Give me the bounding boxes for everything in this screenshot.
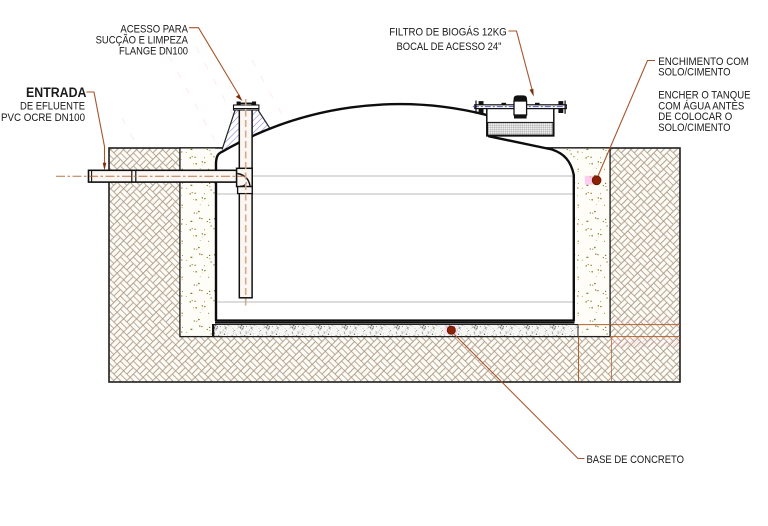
svg-text:SOLO/CIMENTO: SOLO/CIMENTO	[658, 67, 730, 79]
svg-text:BOCAL DE ACESSO 24": BOCAL DE ACESSO 24"	[397, 41, 502, 53]
svg-text:FLANGE DN100: FLANGE DN100	[119, 46, 188, 58]
svg-text:FILTRO DE BIOGÁS 12KG: FILTRO DE BIOGÁS 12KG	[389, 26, 507, 39]
svg-text:BASE DE CONCRETO: BASE DE CONCRETO	[587, 454, 685, 466]
svg-text:ENTRADA: ENTRADA	[26, 85, 87, 100]
svg-text:DE EFLUENTE: DE EFLUENTE	[20, 100, 85, 112]
svg-text:SOLO/CIMENTO: SOLO/CIMENTO	[658, 122, 730, 134]
svg-text:PVC OCRE DN100: PVC OCRE DN100	[1, 112, 85, 124]
svg-text:SUCÇÃO E LIMPEZA: SUCÇÃO E LIMPEZA	[96, 33, 189, 46]
